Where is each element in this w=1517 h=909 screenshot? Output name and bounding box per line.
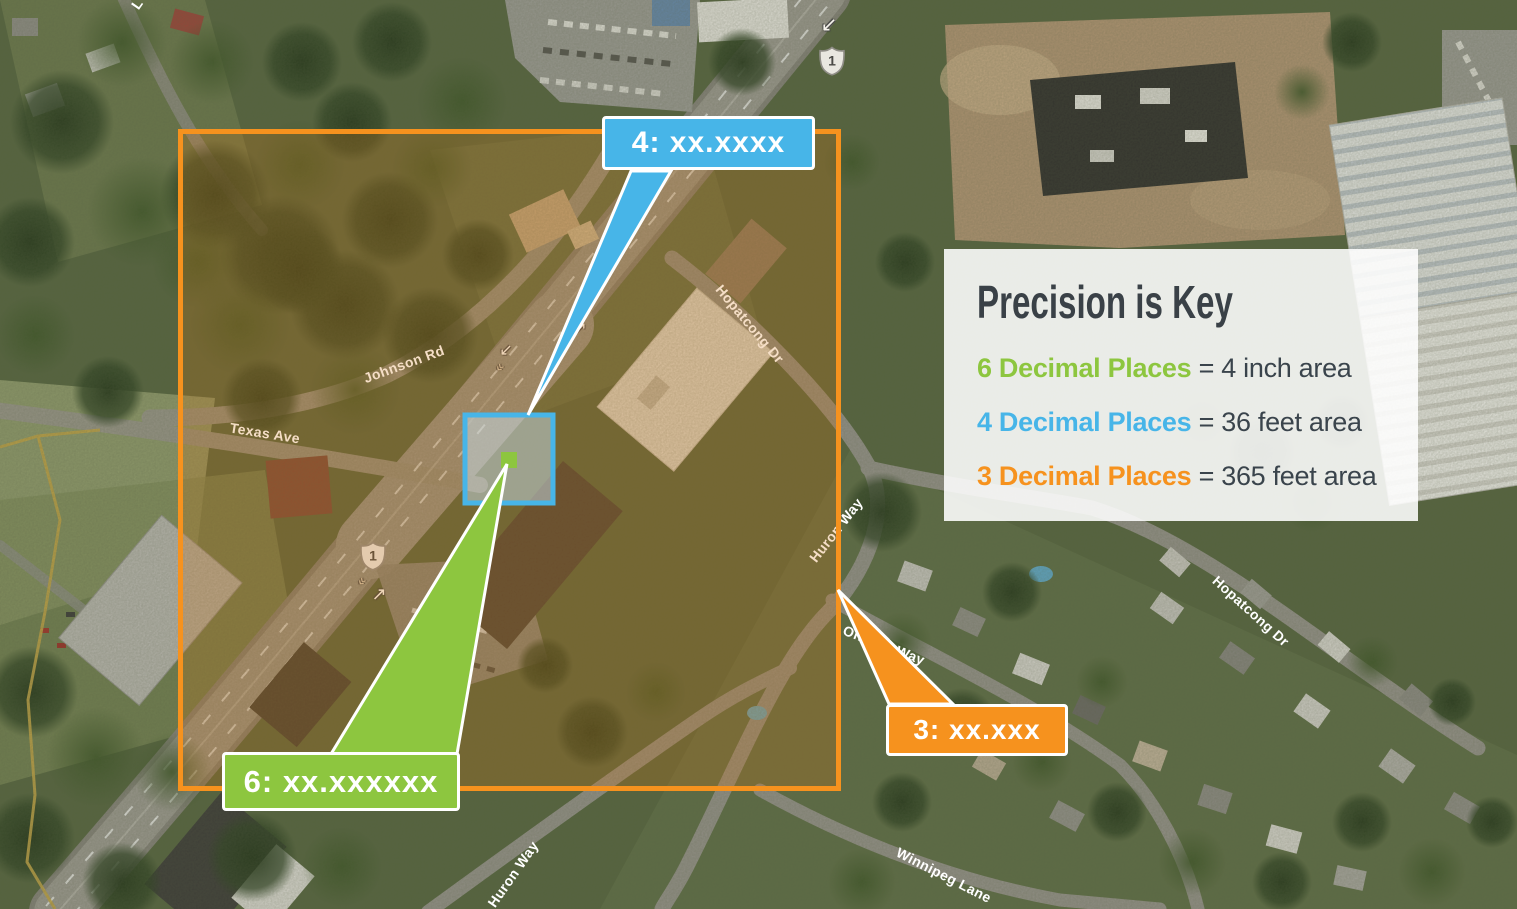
legend-title: Precision is Key [977,275,1233,329]
legend-row-3-decimals: 3 Decimal Places = 365 feet area [977,461,1376,492]
legend-row-value: = 36 feet area [1199,407,1362,437]
legend-row-value: = 365 feet area [1199,461,1377,491]
legend-row-label: 4 Decimal Places [977,407,1191,437]
legend-panel: Precision is Key 6 Decimal Places = 4 in… [944,249,1418,521]
legend-row-label: 3 Decimal Places [977,461,1191,491]
legend-row-6-decimals: 6 Decimal Places = 4 inch area [977,353,1352,384]
three-decimal-area-outline [178,129,841,791]
callout-3-label: 3: xx.xxx [913,714,1040,746]
legend-row-value: = 4 inch area [1199,353,1352,383]
callout-4-label: 4: xx.xxxx [632,126,785,160]
callout-3-decimals: 3: xx.xxx [886,704,1068,756]
callout-4-decimals: 4: xx.xxxx [602,116,815,170]
map-viewport[interactable]: Johnson Rd Texas Ave Hopatcong Dr Huron … [0,0,1517,909]
legend-row-label: 6 Decimal Places [977,353,1191,383]
callout-6-decimals: 6: xx.xxxxxx [222,752,460,811]
callout-6-label: 6: xx.xxxxxx [244,764,439,800]
legend-row-4-decimals: 4 Decimal Places = 36 feet area [977,407,1362,438]
